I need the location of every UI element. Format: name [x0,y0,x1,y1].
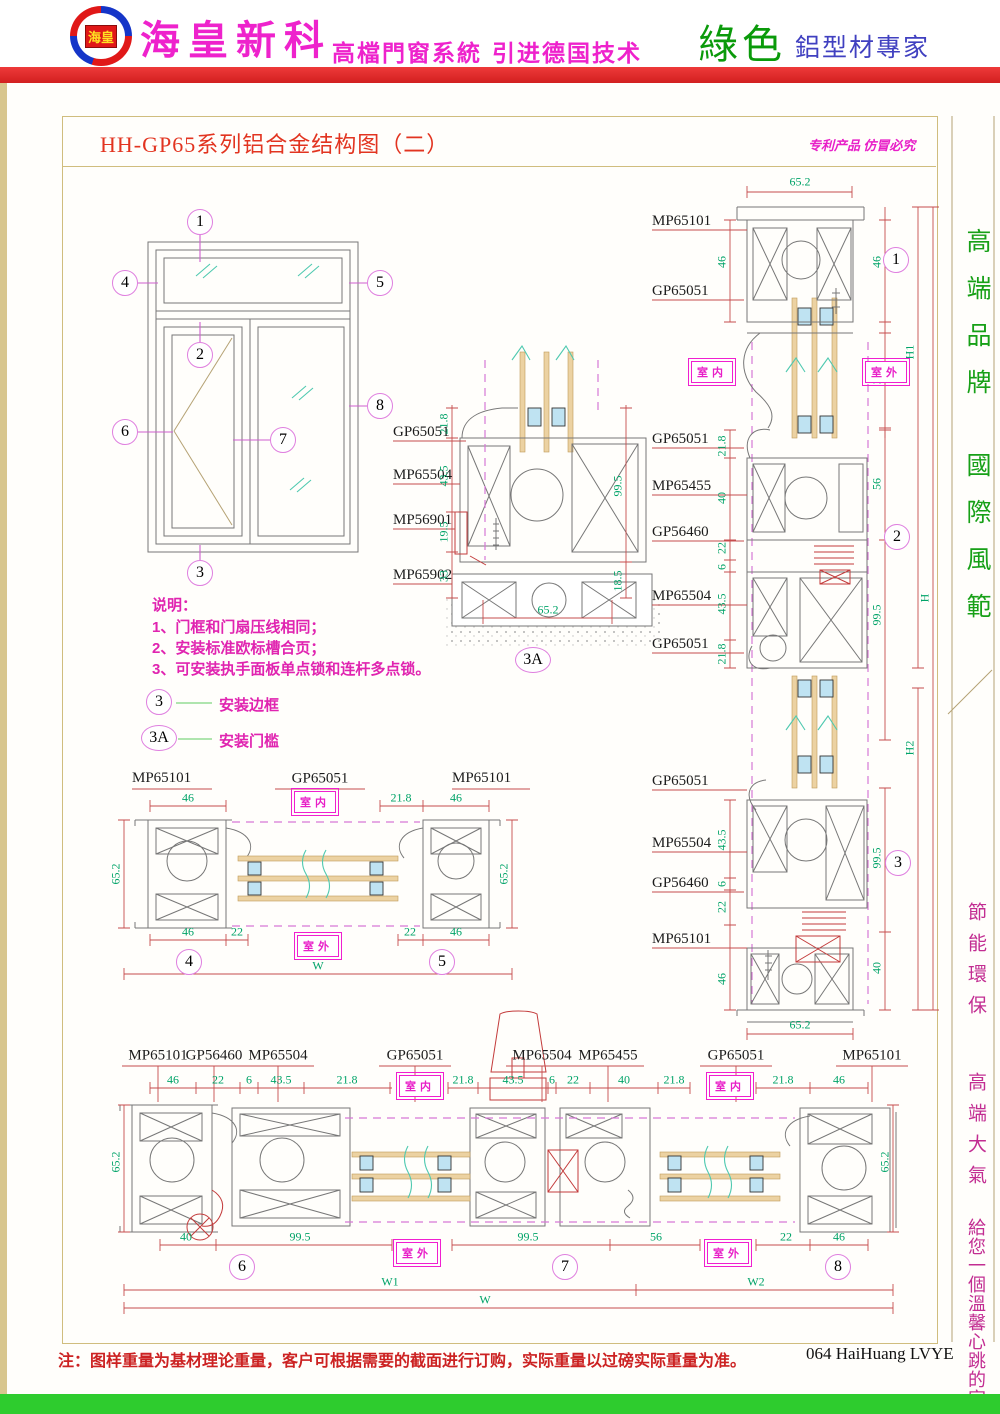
dim-value: 21.8 [773,1073,794,1088]
part-label: GP56460 [652,875,709,892]
dim-value: H [918,594,933,603]
dim-value: 46 [715,256,730,268]
dim-value: 6 [549,1073,555,1088]
footer-green-bar [0,1394,1000,1414]
part-label: MP65101 [652,931,711,948]
legend-mark-3: 3 [146,689,172,715]
outdoor-label: 室外 [865,361,907,383]
dim-value: 6 [715,881,730,887]
dim-value: 65.2 [497,864,512,885]
dim-value: 56 [650,1230,662,1245]
dim-value: 21.8 [337,1073,358,1088]
dim-value: 65.2 [109,1152,124,1173]
width-label: W1 [381,1275,398,1290]
indoor-label: 室内 [294,791,336,813]
part-label: GP65051 [652,773,709,790]
callout-section-8: 8 [825,1254,851,1280]
dim-value: 22 [404,925,416,940]
dim-value: 40 [715,492,730,504]
part-label: GP65051 [652,283,709,300]
callout-5: 5 [367,270,393,296]
dim-value: 65.2 [878,1152,893,1173]
dim-value: 18.5 [611,571,626,592]
part-label: GP65051 [652,431,709,448]
dim-value: 65.2 [790,1018,811,1033]
callout-7: 7 [270,427,296,453]
dim-value: 21.8 [715,644,730,665]
dim-value: 99.5 [518,1230,539,1245]
dim-value: 46 [450,791,462,806]
callout-section-3: 3 [885,850,911,876]
part-label: GP56460 [652,524,709,541]
indoor-label: 室内 [399,1075,441,1097]
part-label: MP65101 [452,770,511,787]
dim-value: 46 [833,1073,845,1088]
part-label: MP65455 [578,1048,637,1065]
dim-value: 19.5 [437,522,452,543]
outdoor-label: 室外 [297,935,339,957]
part-label: MP65101 [652,213,711,230]
dim-value: 46 [833,1230,845,1245]
dim-value: 40 [870,962,885,974]
width-label: W [479,1293,490,1308]
elevation-drawing [138,235,367,560]
part-label: GP56460 [186,1048,243,1065]
dim-value: 43.5 [715,830,730,851]
callout-section-1: 1 [883,247,909,273]
notes-item: 1、门框和门扇压线相同； [152,616,325,637]
dim-value: 99.5 [870,605,885,626]
dim-value: H2 [903,741,918,756]
legend-mark-3a: 3A [141,725,177,751]
part-label: MP65504 [652,588,711,605]
right-mid-drawing [652,429,891,740]
part-label: MP65101 [842,1048,901,1065]
outdoor-label: 室外 [396,1242,438,1264]
notes-item: 3、可安装执手面板单点锁和连杆多点锁。 [152,658,430,679]
dim-value: 21.8 [437,414,452,435]
callout-3: 3 [187,560,213,586]
indoor-label: 室内 [709,1075,751,1097]
dim-value: 99.5 [870,848,885,869]
callout-section-5: 5 [429,949,455,975]
legend-label: 安装边框 [219,694,279,715]
dim-value: 33 [437,570,452,582]
callout-section-7: 7 [552,1254,578,1280]
notes-item: 2、安装标准欧标槽合页； [152,637,325,658]
part-label: GP65051 [652,636,709,653]
outdoor-label: 室外 [707,1242,749,1264]
indoor-label: 室内 [691,361,733,383]
dim-value: 40 [180,1230,192,1245]
part-label: MP65101 [132,770,191,787]
dim-value: 40 [618,1073,630,1088]
callout-3a: 3A [515,647,551,673]
callout-1: 1 [187,209,213,235]
callout-section-6: 6 [229,1254,255,1280]
dim-value: 22 [567,1073,579,1088]
width-label: W [312,959,323,974]
dim-value: 6 [246,1073,252,1088]
callout-section-4: 4 [176,949,202,975]
dim-value: 65.2 [790,175,811,190]
dim-value: 22 [231,925,243,940]
callout-6: 6 [112,419,138,445]
dim-value: 21.8 [391,791,412,806]
callout-4: 4 [112,270,138,296]
part-label: MP65504 [652,835,711,852]
sidebar-rules [948,116,994,1342]
dim-value: 65.2 [538,603,559,618]
dim-value: 6 [715,564,730,570]
dim-value: 22 [780,1230,792,1245]
part-label: GP65051 [292,771,349,788]
width-label: W2 [747,1275,764,1290]
right-column-glass [752,298,868,1004]
part-label: GP65051 [387,1048,444,1065]
legend-lines [176,703,212,739]
page-number: 064 HaiHuang LVYE [806,1344,954,1364]
part-label: MP65504 [512,1048,571,1065]
callout-section-2: 2 [884,524,910,550]
legend-label: 安装门槛 [219,730,279,751]
dim-value: 43.5 [715,594,730,615]
dim-value: H1 [903,345,918,360]
dim-value: 46 [450,925,462,940]
dim-value: 43.5 [437,466,452,487]
notes-heading: 说明： [152,594,197,615]
dim-value: 21.8 [715,436,730,457]
part-label: GP65051 [708,1048,765,1065]
dim-value: 46 [182,925,194,940]
dim-value: 65.2 [109,864,124,885]
dim-value: 22 [715,901,730,913]
part-label: MP65101 [128,1048,187,1065]
footer-note: 注：图样重量为基材理论重量，客户可根据需要的截面进行订购，实际重量以过磅实际重量… [58,1347,746,1371]
callout-8: 8 [367,393,393,419]
dim-value: 46 [167,1073,179,1088]
dim-value: 46 [182,791,194,806]
callout-2: 2 [187,342,213,368]
part-label: MP65455 [652,478,711,495]
dim-value: 99.5 [611,476,626,497]
dim-value: 43.5 [271,1073,292,1088]
part-label: MP65504 [248,1048,307,1065]
dim-value: 21.8 [453,1073,474,1088]
dim-value: 22 [212,1073,224,1088]
dim-value: 99.5 [290,1230,311,1245]
dim-value: 22 [715,542,730,554]
dim-value: 46 [715,973,730,985]
catalog-page: 海皇 海皇新科 高檔門窗系統 引进德国技术 綠色 鋁型材專家 HH-GP65系列… [0,0,1000,1414]
dim-value: 56 [870,478,885,490]
dim-value: 21.8 [664,1073,685,1088]
dim-value: 43.5 [503,1073,524,1088]
